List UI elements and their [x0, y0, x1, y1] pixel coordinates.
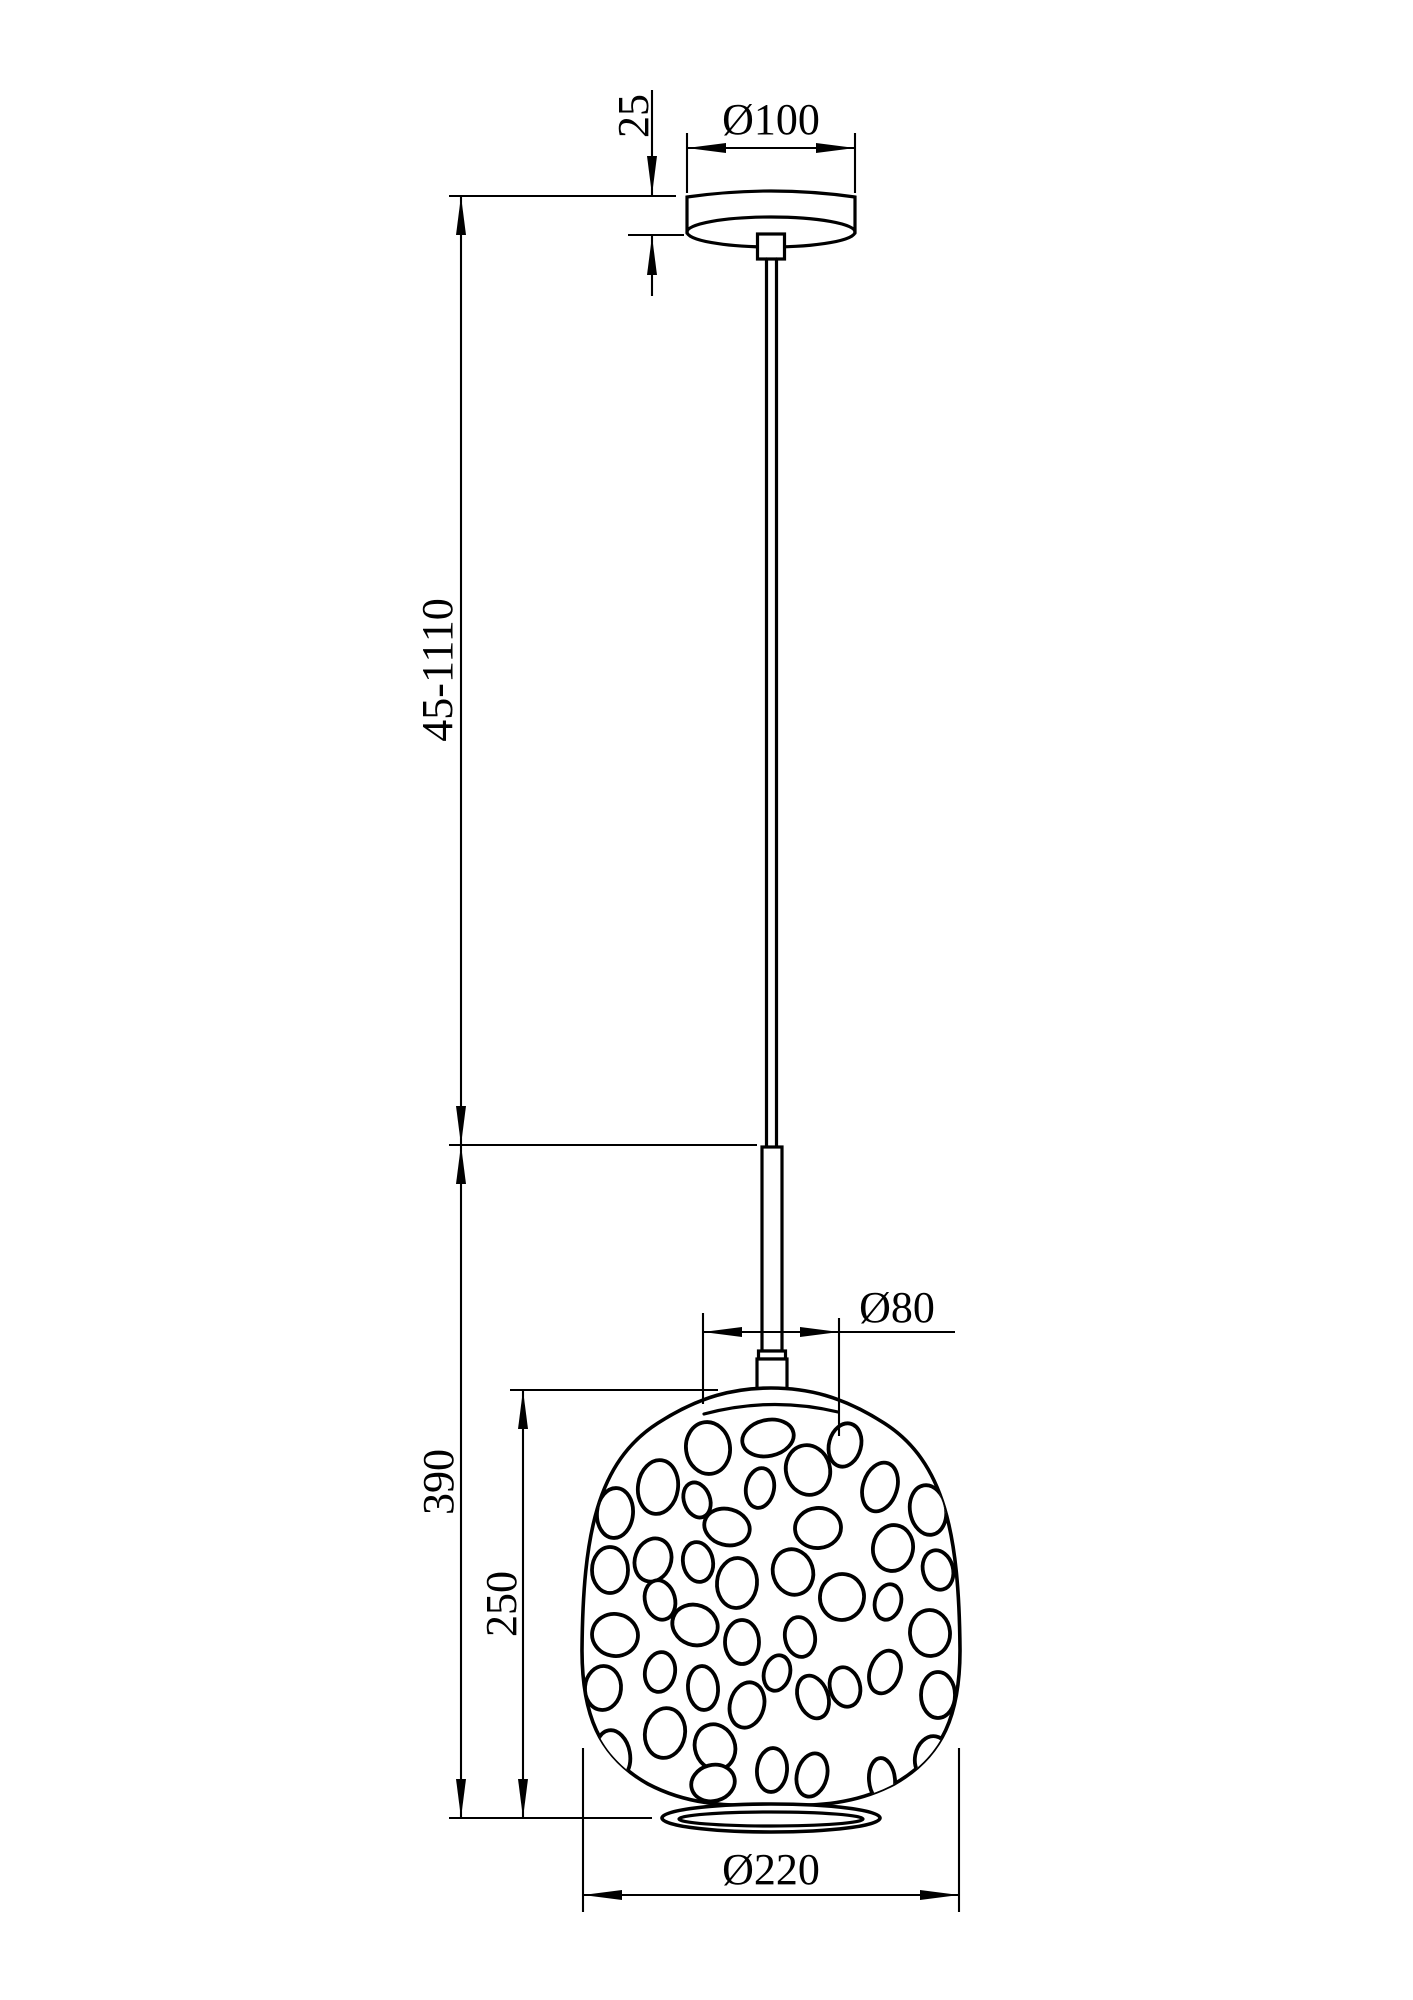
- shade-body-height-label: 250: [477, 1571, 526, 1637]
- pebble-hole: [583, 1665, 623, 1712]
- ceiling-canopy: [687, 191, 855, 259]
- canopy-height-label: 25: [609, 94, 658, 138]
- canopy-diameter-label: Ø100: [722, 95, 820, 144]
- neck-diameter-label: Ø80: [859, 1283, 935, 1332]
- shade-diameter-label: Ø220: [722, 1845, 820, 1894]
- suspension-length-label: 45-1110: [413, 598, 462, 741]
- pebble-hole: [921, 1672, 955, 1718]
- technical-drawing: Ø100 25 45-1110 390 250 Ø80 Ø22: [0, 0, 1413, 2000]
- suspension-rod: [757, 259, 787, 1392]
- bottom-ring: [662, 1804, 880, 1832]
- pebble-hole: [725, 1620, 759, 1664]
- dimension-suspension-length: 45-1110: [413, 196, 462, 1145]
- pebble-hole: [793, 1506, 842, 1550]
- dimension-canopy-height: 25: [449, 90, 684, 296]
- rod-lower-sleeve: [762, 1147, 782, 1351]
- canopy-body: [687, 191, 855, 233]
- glass-shade: [582, 1388, 960, 1832]
- pebble-hole: [908, 1608, 952, 1657]
- bottom-ring-outer: [662, 1804, 880, 1832]
- pendant-lamp: [582, 191, 960, 1832]
- pebble-hole: [592, 1547, 628, 1593]
- dimension-canopy-diameter: Ø100: [687, 95, 855, 193]
- shade-total-height-label: 390: [414, 1449, 463, 1515]
- canopy-cord-grip: [758, 234, 785, 259]
